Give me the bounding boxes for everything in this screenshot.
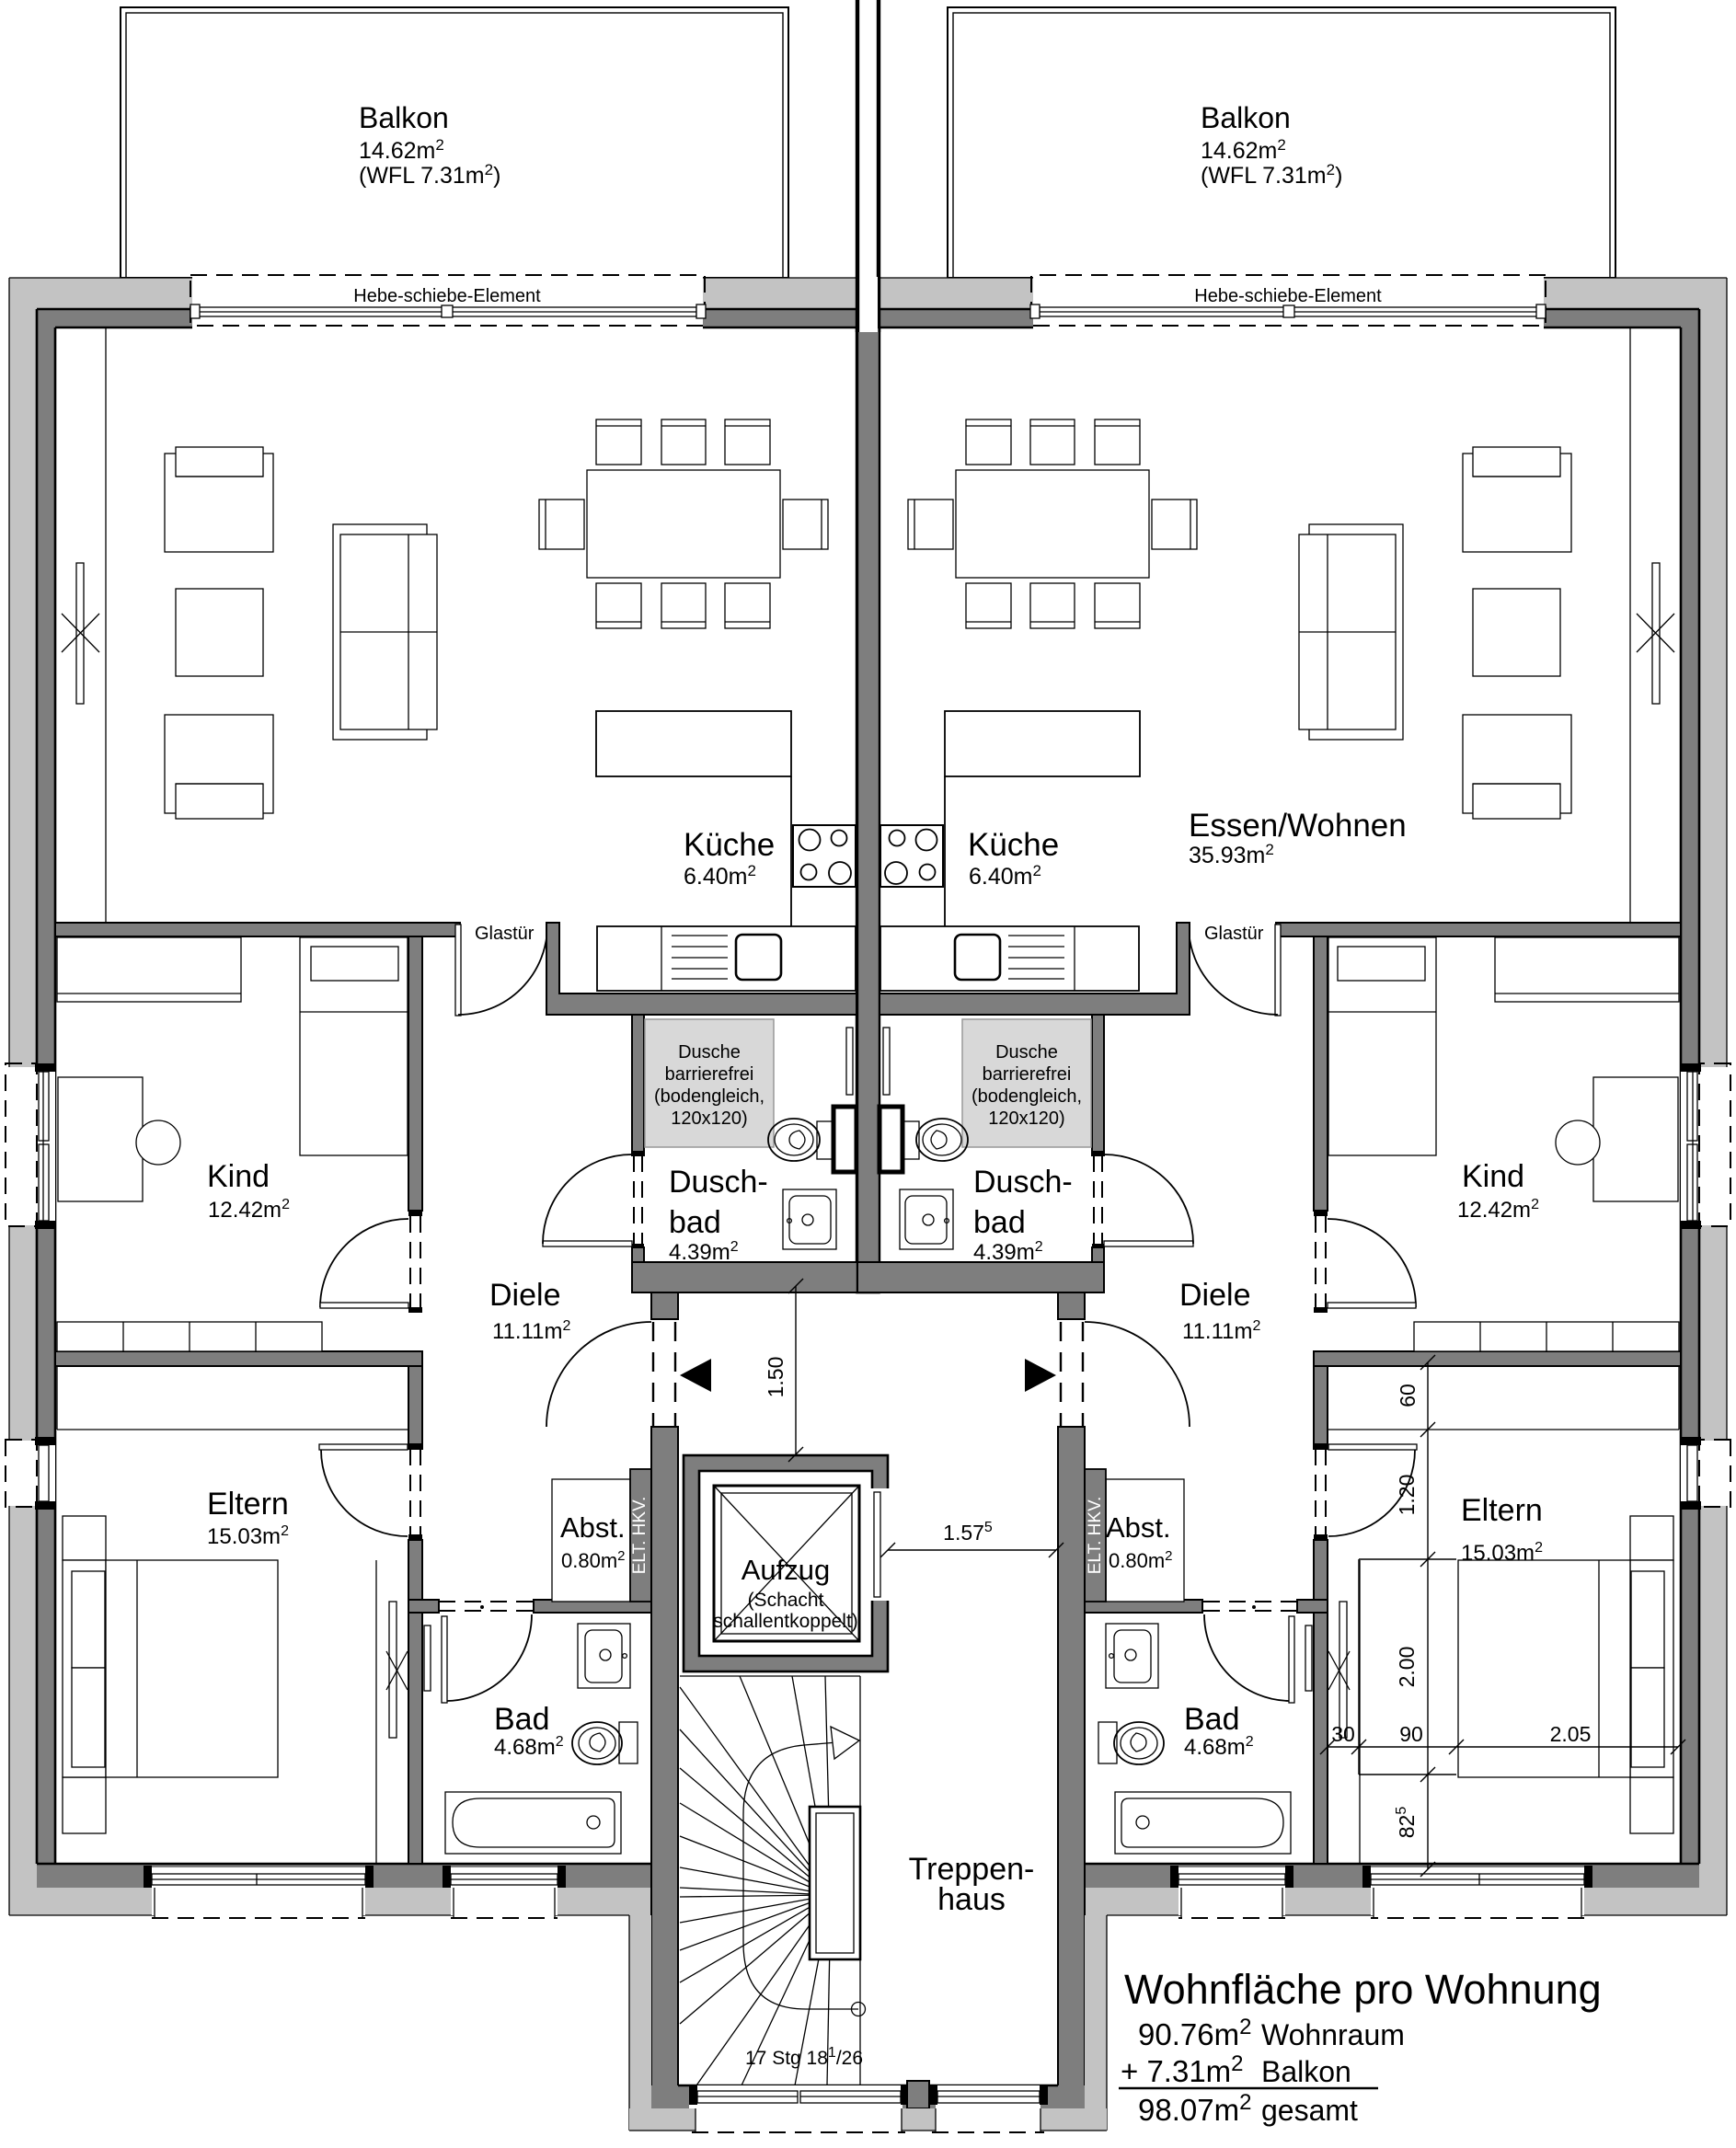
svg-text:Hebe-schiebe-Element: Hebe-schiebe-Element bbox=[1194, 286, 1382, 306]
svg-text:(bodengleich,: (bodengleich, bbox=[971, 1086, 1082, 1107]
svg-text:Kind: Kind bbox=[207, 1159, 270, 1194]
svg-text:12.42m2: 12.42m2 bbox=[1457, 1197, 1539, 1223]
svg-text:+ 7.31m2: + 7.31m2 bbox=[1121, 2051, 1244, 2088]
svg-text:barrierefrei: barrierefrei bbox=[983, 1064, 1072, 1085]
svg-text:60: 60 bbox=[1396, 1384, 1420, 1407]
svg-text:Eltern: Eltern bbox=[207, 1487, 289, 1522]
svg-text:Kind: Kind bbox=[1462, 1159, 1524, 1194]
svg-text:Dusch-: Dusch- bbox=[973, 1165, 1073, 1200]
svg-text:30: 30 bbox=[1331, 1722, 1355, 1746]
svg-text:98.07m2: 98.07m2 bbox=[1138, 2090, 1251, 2127]
svg-text:Hebe-schiebe-Element: Hebe-schiebe-Element bbox=[353, 286, 541, 306]
svg-text:Abst.: Abst. bbox=[1106, 1511, 1171, 1544]
svg-text:Abst.: Abst. bbox=[560, 1511, 626, 1544]
svg-text:11.11m2: 11.11m2 bbox=[1182, 1318, 1261, 1344]
svg-text:Wohnfläche pro Wohnung: Wohnfläche pro Wohnung bbox=[1124, 1966, 1602, 2013]
svg-text:120x120): 120x120) bbox=[988, 1108, 1064, 1129]
svg-text:15.03m2: 15.03m2 bbox=[1461, 1540, 1543, 1566]
svg-text:2.05: 2.05 bbox=[1550, 1722, 1592, 1746]
svg-text:1.20: 1.20 bbox=[1395, 1475, 1419, 1516]
svg-text:4.39m2: 4.39m2 bbox=[669, 1239, 739, 1265]
svg-text:bad: bad bbox=[669, 1205, 721, 1240]
svg-text:Balkon: Balkon bbox=[1201, 101, 1291, 134]
svg-text:gesamt: gesamt bbox=[1261, 2094, 1358, 2127]
svg-text:barrierefrei: barrierefrei bbox=[665, 1064, 754, 1085]
svg-text:Balkon: Balkon bbox=[359, 101, 449, 134]
svg-text:6.40m2: 6.40m2 bbox=[969, 862, 1041, 890]
svg-text:ELT. HKV.: ELT. HKV. bbox=[630, 1497, 650, 1575]
svg-text:14.62m2: 14.62m2 bbox=[359, 136, 444, 164]
svg-text:Balkon: Balkon bbox=[1261, 2055, 1351, 2088]
svg-text:Glastür: Glastür bbox=[1204, 924, 1264, 944]
svg-text:(bodengleich,: (bodengleich, bbox=[654, 1086, 765, 1107]
svg-text:Aufzug: Aufzug bbox=[742, 1554, 831, 1586]
svg-text:Wohnraum: Wohnraum bbox=[1261, 2018, 1405, 2051]
svg-text:Dusche: Dusche bbox=[678, 1042, 741, 1063]
svg-text:bad: bad bbox=[973, 1205, 1026, 1240]
svg-text:Dusche: Dusche bbox=[995, 1042, 1058, 1063]
svg-text:90: 90 bbox=[1399, 1722, 1423, 1746]
svg-text:15.03m2: 15.03m2 bbox=[207, 1523, 289, 1549]
svg-text:11.11m2: 11.11m2 bbox=[492, 1318, 571, 1344]
svg-text:ELT. HKV.: ELT. HKV. bbox=[1086, 1497, 1105, 1575]
svg-text:17 Stg 181/26: 17 Stg 181/26 bbox=[745, 2045, 863, 2069]
svg-text:Eltern: Eltern bbox=[1461, 1493, 1543, 1528]
svg-text:(Schacht: (Schacht bbox=[748, 1590, 824, 1611]
svg-text:2.00: 2.00 bbox=[1395, 1647, 1419, 1688]
svg-text:12.42m2: 12.42m2 bbox=[208, 1197, 290, 1223]
svg-text:14.62m2: 14.62m2 bbox=[1201, 136, 1286, 164]
svg-text:Küche: Küche bbox=[684, 827, 775, 863]
svg-text:Diele: Diele bbox=[1179, 1278, 1250, 1313]
svg-text:Bad: Bad bbox=[1184, 1702, 1240, 1737]
svg-text:Küche: Küche bbox=[968, 827, 1059, 863]
svg-text:(WFL 7.31m2): (WFL 7.31m2) bbox=[1201, 161, 1342, 189]
svg-text:0.80m2: 0.80m2 bbox=[561, 1548, 626, 1572]
svg-text:4.68m2: 4.68m2 bbox=[1184, 1734, 1254, 1760]
svg-text:Bad: Bad bbox=[494, 1702, 550, 1737]
svg-text:4.68m2: 4.68m2 bbox=[494, 1734, 564, 1760]
svg-text:4.39m2: 4.39m2 bbox=[973, 1239, 1043, 1265]
svg-text:schallentkoppelt): schallentkoppelt) bbox=[713, 1611, 858, 1632]
svg-text:(WFL 7.31m2): (WFL 7.31m2) bbox=[359, 161, 500, 189]
svg-text:35.93m2: 35.93m2 bbox=[1189, 841, 1274, 868]
svg-text:Diele: Diele bbox=[489, 1278, 560, 1313]
svg-text:120x120): 120x120) bbox=[671, 1108, 747, 1129]
svg-text:90.76m2: 90.76m2 bbox=[1138, 2015, 1251, 2051]
svg-text:Glastür: Glastür bbox=[475, 924, 535, 944]
svg-text:Dusch-: Dusch- bbox=[669, 1165, 768, 1200]
svg-text:0.80m2: 0.80m2 bbox=[1109, 1548, 1173, 1572]
svg-text:Essen/Wohnen: Essen/Wohnen bbox=[1189, 808, 1407, 844]
svg-text:haus: haus bbox=[937, 1882, 1006, 1917]
svg-text:6.40m2: 6.40m2 bbox=[684, 862, 756, 890]
svg-text:1.50: 1.50 bbox=[764, 1357, 788, 1398]
